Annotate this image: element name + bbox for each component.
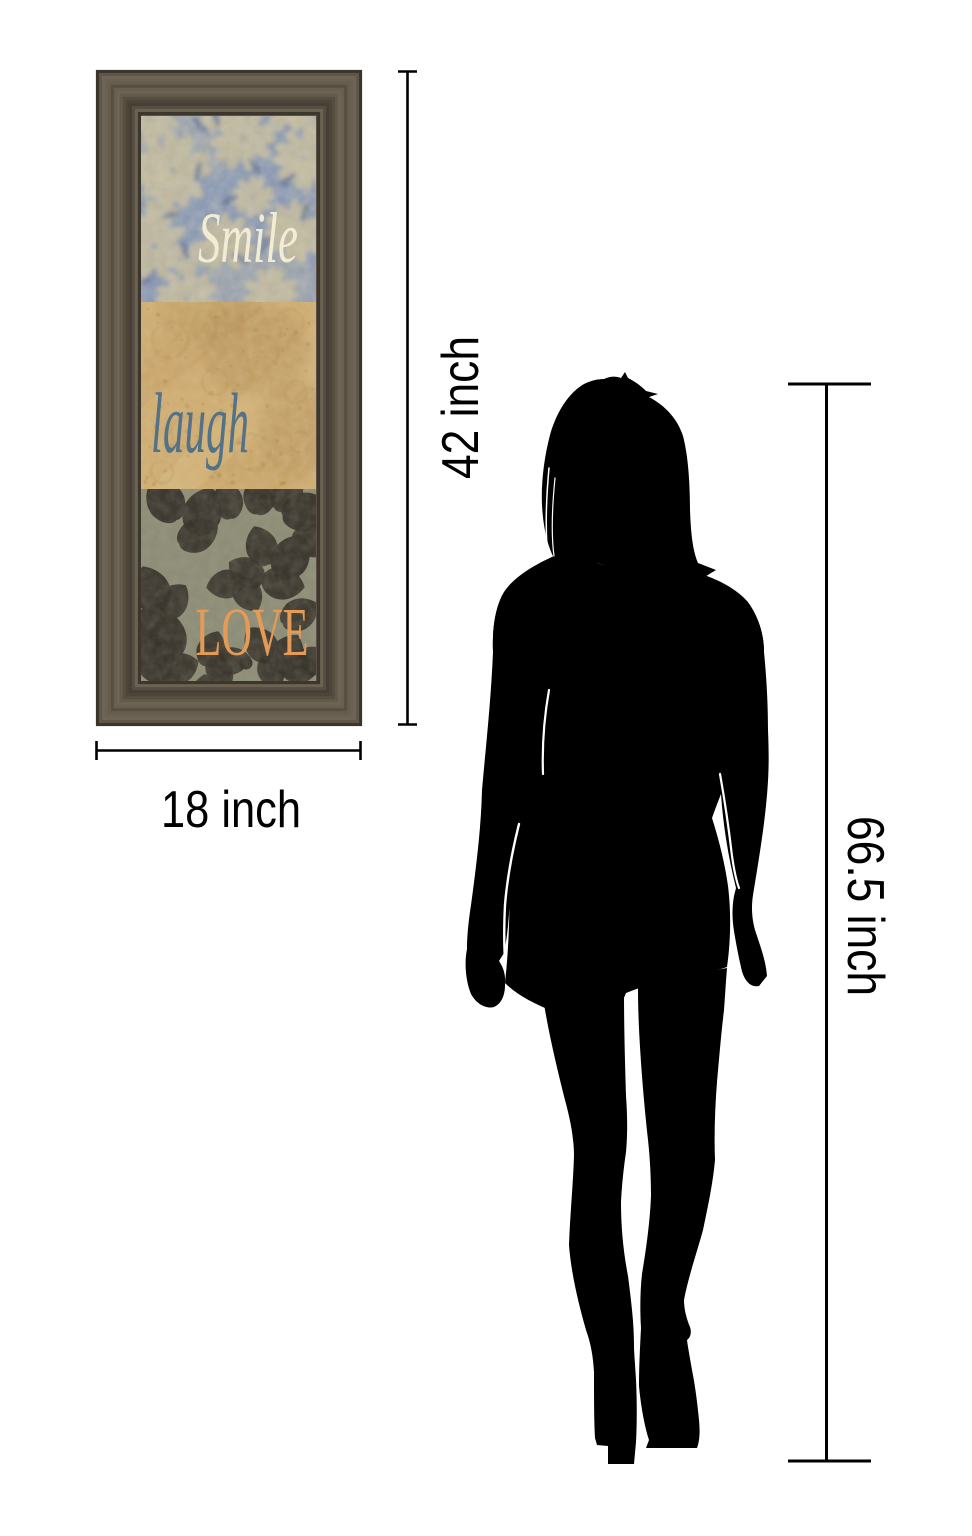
svg-text:LOVE: LOVE — [196, 594, 309, 670]
svg-text:laugh: laugh — [151, 375, 249, 471]
svg-text:42 inch: 42 inch — [432, 336, 490, 479]
svg-text:66.5 inch: 66.5 inch — [836, 816, 894, 996]
svg-text:Smile: Smile — [198, 198, 298, 278]
svg-text:18 inch: 18 inch — [161, 781, 301, 839]
